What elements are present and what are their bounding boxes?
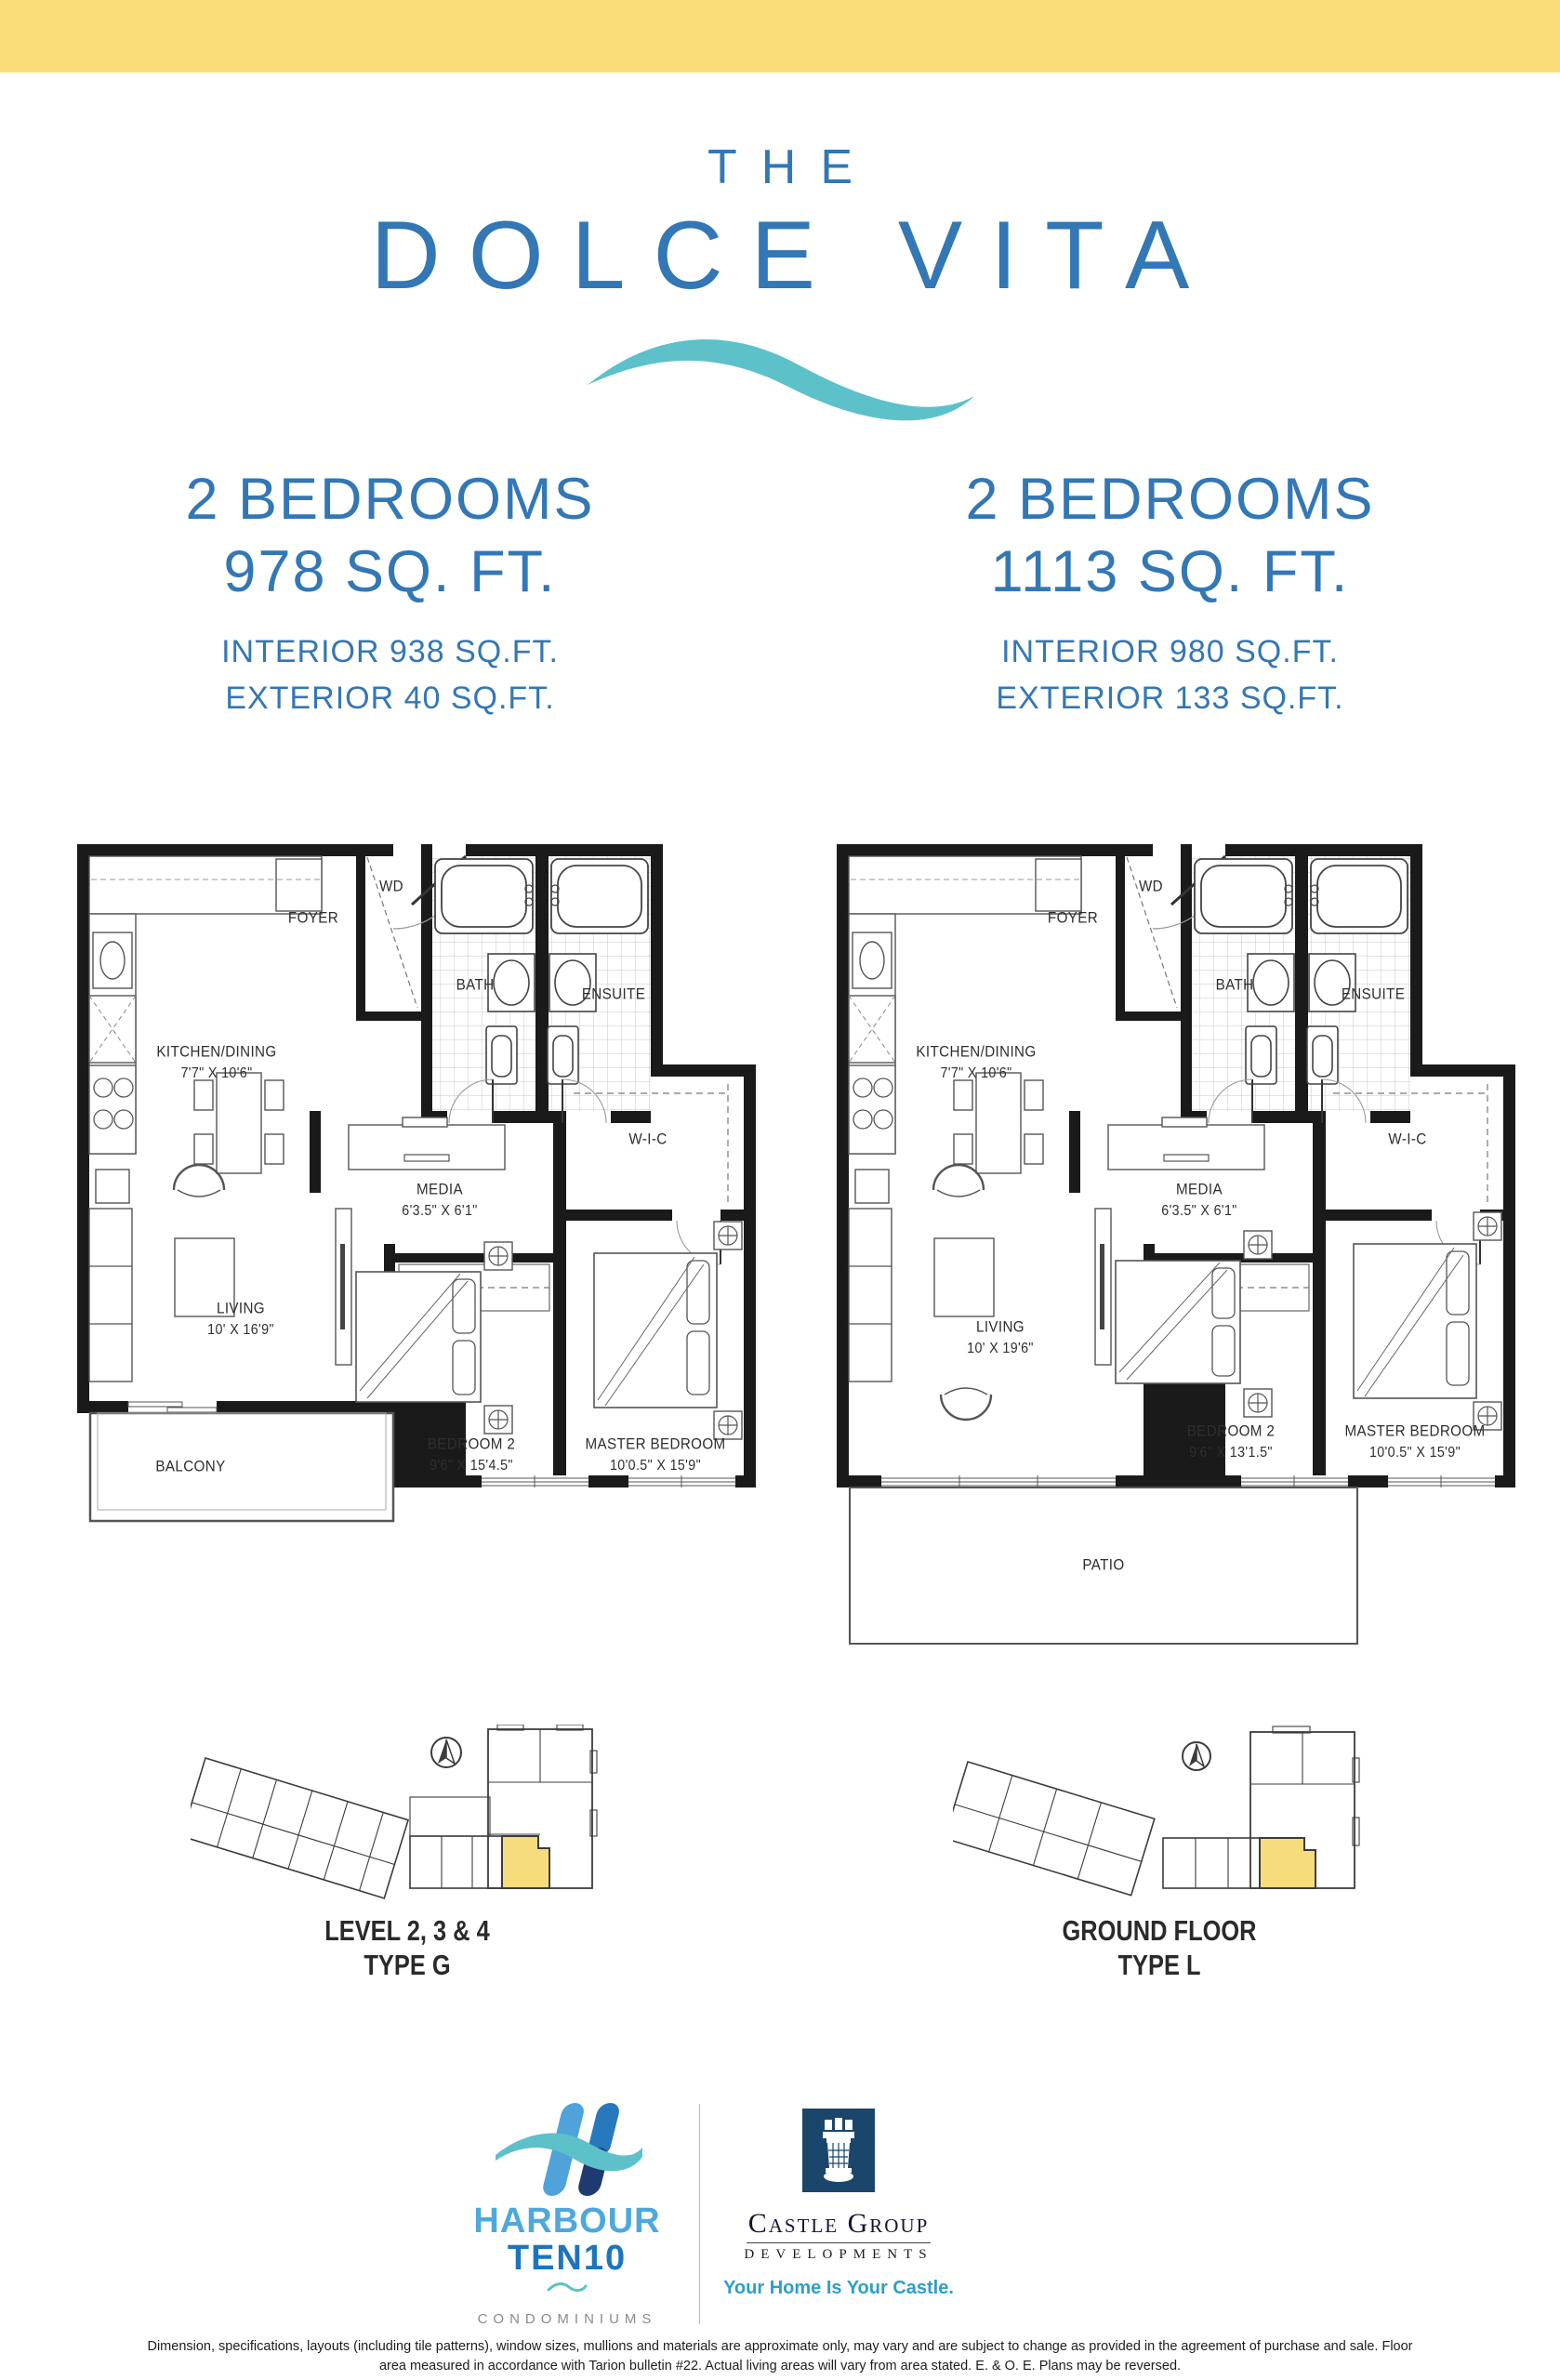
room-dims-master: 10'0.5" X 15'9" [610, 1458, 701, 1474]
floorplan-drawing [837, 844, 1515, 1662]
room-dims-kitchen: 7'7" X 10'6" [180, 1065, 252, 1082]
compass-icon [431, 1738, 461, 1767]
harbour-tilde-icon [547, 2282, 588, 2294]
spec-bedrooms: 2 BEDROOMS [0, 463, 780, 535]
unit-specs: 2 BEDROOMS 978 SQ. FT. INTERIOR 938 SQ.F… [0, 463, 1560, 721]
spec-exterior: EXTERIOR 40 SQ.FT. [0, 675, 780, 721]
castle-tagline: Your Home Is Your Castle. [708, 2278, 969, 2299]
room-label-wd: WD [1139, 879, 1163, 896]
disclaimer-line-2: area measured in accordance with Tarion … [0, 2357, 1560, 2376]
room-label-kitchen: KITCHEN/DINING [916, 1044, 1036, 1062]
harbour-logo-icon [488, 2101, 646, 2198]
room-dims-master: 10'0.5" X 15'9" [1369, 1445, 1461, 1461]
spec-area: 978 SQ. FT. [0, 535, 780, 608]
room-label-patio: PATIO [1082, 1557, 1124, 1575]
room-dims-bedroom2: 9'6" X 15'4.5" [430, 1458, 513, 1474]
keyplan-drawing [953, 1725, 1390, 1911]
disclaimer-line-1: Dimension, specifications, layouts (incl… [0, 2337, 1560, 2357]
room-label-bedroom2: BEDROOM 2 [428, 1436, 515, 1454]
flyer-page: THE DOLCE VITA 2 BEDROOMS 978 SQ. FT. IN… [0, 0, 1560, 2380]
highlighted-unit [502, 1836, 549, 1888]
room-label-foyer: FOYER [1048, 910, 1098, 928]
room-label-wic: W-I-C [1388, 1131, 1426, 1149]
room-label-living: LIVING [976, 1319, 1025, 1337]
floorplan-type-l: FOYER WD BATH ENSUITE KITCHEN/DINING 7'7… [837, 844, 1515, 1662]
harbour-subtitle: CONDOMINIUMS [437, 2311, 697, 2327]
logo-divider [699, 2104, 700, 2324]
unit-spec-card-right: 2 BEDROOMS 1113 SQ. FT. INTERIOR 980 SQ.… [780, 463, 1560, 721]
highlighted-unit [1260, 1838, 1315, 1888]
spec-area: 1113 SQ. FT. [780, 535, 1560, 608]
harbour-wordmark-line2: TEN10 [437, 2240, 697, 2277]
keyplan-type: TYPE L [969, 1948, 1350, 1982]
page-title: DOLCE VITA [0, 201, 1560, 311]
castle-logo: Castle Group DEVELOPMENTS Your Home Is Y… [708, 2109, 969, 2299]
room-dims-bedroom2: 9'6" X 13'1.5" [1189, 1445, 1273, 1461]
room-label-foyer: FOYER [288, 910, 338, 928]
room-label-balcony: BALCONY [155, 1459, 225, 1476]
castle-division: DEVELOPMENTS [708, 2247, 969, 2263]
harbour-wordmark-line1: HARBOUR [437, 2202, 697, 2240]
room-dims-media: 6'3.5" X 6'1" [1161, 1203, 1236, 1220]
room-label-bath: BATH [456, 977, 495, 995]
room-dims-living: 10' X 19'6" [967, 1341, 1034, 1357]
room-label-media: MEDIA [416, 1182, 463, 1199]
disclaimer: Dimension, specifications, layouts (incl… [0, 2337, 1560, 2376]
room-label-bedroom2: BEDROOM 2 [1187, 1423, 1275, 1441]
unit-spec-card-left: 2 BEDROOMS 978 SQ. FT. INTERIOR 938 SQ.F… [0, 463, 780, 721]
room-label-master: MASTER BEDROOM [585, 1436, 725, 1454]
room-label-master: MASTER BEDROOM [1344, 1423, 1485, 1441]
keyplan-label-type-g: LEVEL 2, 3 & 4 TYPE G [175, 1913, 640, 1982]
room-label-wic: W-I-C [628, 1131, 667, 1149]
room-dims-kitchen: 7'7" X 10'6" [940, 1065, 1011, 1082]
floorplan-type-g: FOYER WD BATH ENSUITE KITCHEN/DINING 7'7… [77, 844, 756, 1537]
room-label-living: LIVING [217, 1301, 265, 1318]
room-label-media: MEDIA [1176, 1182, 1223, 1199]
keyplan-level: LEVEL 2, 3 & 4 [217, 1913, 598, 1948]
room-label-ensuite: ENSUITE [582, 986, 645, 1004]
spec-exterior: EXTERIOR 133 SQ.FT. [780, 675, 1560, 721]
spec-bedrooms: 2 BEDROOMS [780, 463, 1560, 535]
room-label-bath: BATH [1216, 977, 1254, 995]
compass-icon [1183, 1742, 1210, 1770]
room-dims-living: 10' X 16'9" [207, 1322, 274, 1339]
keyplan-drawing [191, 1725, 628, 1911]
keyplan-level: GROUND FLOOR [969, 1913, 1350, 1948]
spec-interior: INTERIOR 938 SQ.FT. [0, 628, 780, 675]
harbour-logo: HARBOUR TEN10 CONDOMINIUMS [437, 2101, 697, 2327]
room-label-ensuite: ENSUITE [1342, 986, 1405, 1004]
keyplan-label-type-l: GROUND FLOOR TYPE L [927, 1913, 1392, 1982]
wave-swoosh-icon [584, 324, 978, 439]
keyplan-type: TYPE G [217, 1948, 598, 1982]
spec-interior: INTERIOR 980 SQ.FT. [780, 628, 1560, 675]
room-label-wd: WD [379, 879, 403, 896]
keyplan-type-g [191, 1725, 628, 1915]
castle-name: Castle Group [747, 2208, 932, 2243]
header-kicker: THE [0, 139, 1560, 195]
castle-logo-icon [802, 2109, 875, 2192]
room-label-kitchen: KITCHEN/DINING [156, 1044, 276, 1062]
top-banner [0, 0, 1560, 73]
room-dims-media: 6'3.5" X 6'1" [402, 1203, 477, 1220]
keyplan-type-l [953, 1725, 1390, 1915]
